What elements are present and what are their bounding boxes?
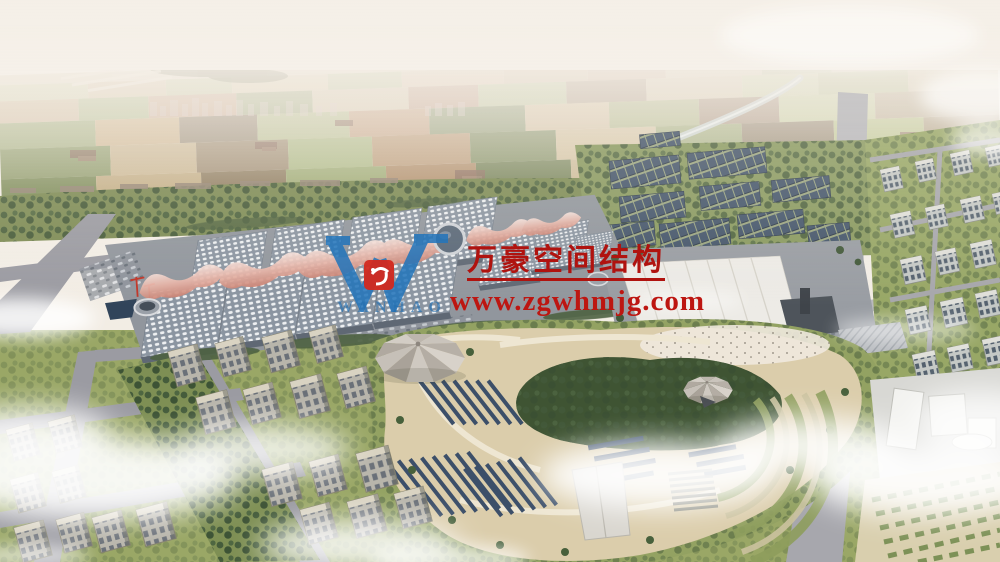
atmosphere-tint [0,0,1000,562]
aerial-rendering: WANHAO 万豪空间结构 www.zgwhmjg.com [0,0,1000,562]
rendering-scene [0,0,1000,562]
